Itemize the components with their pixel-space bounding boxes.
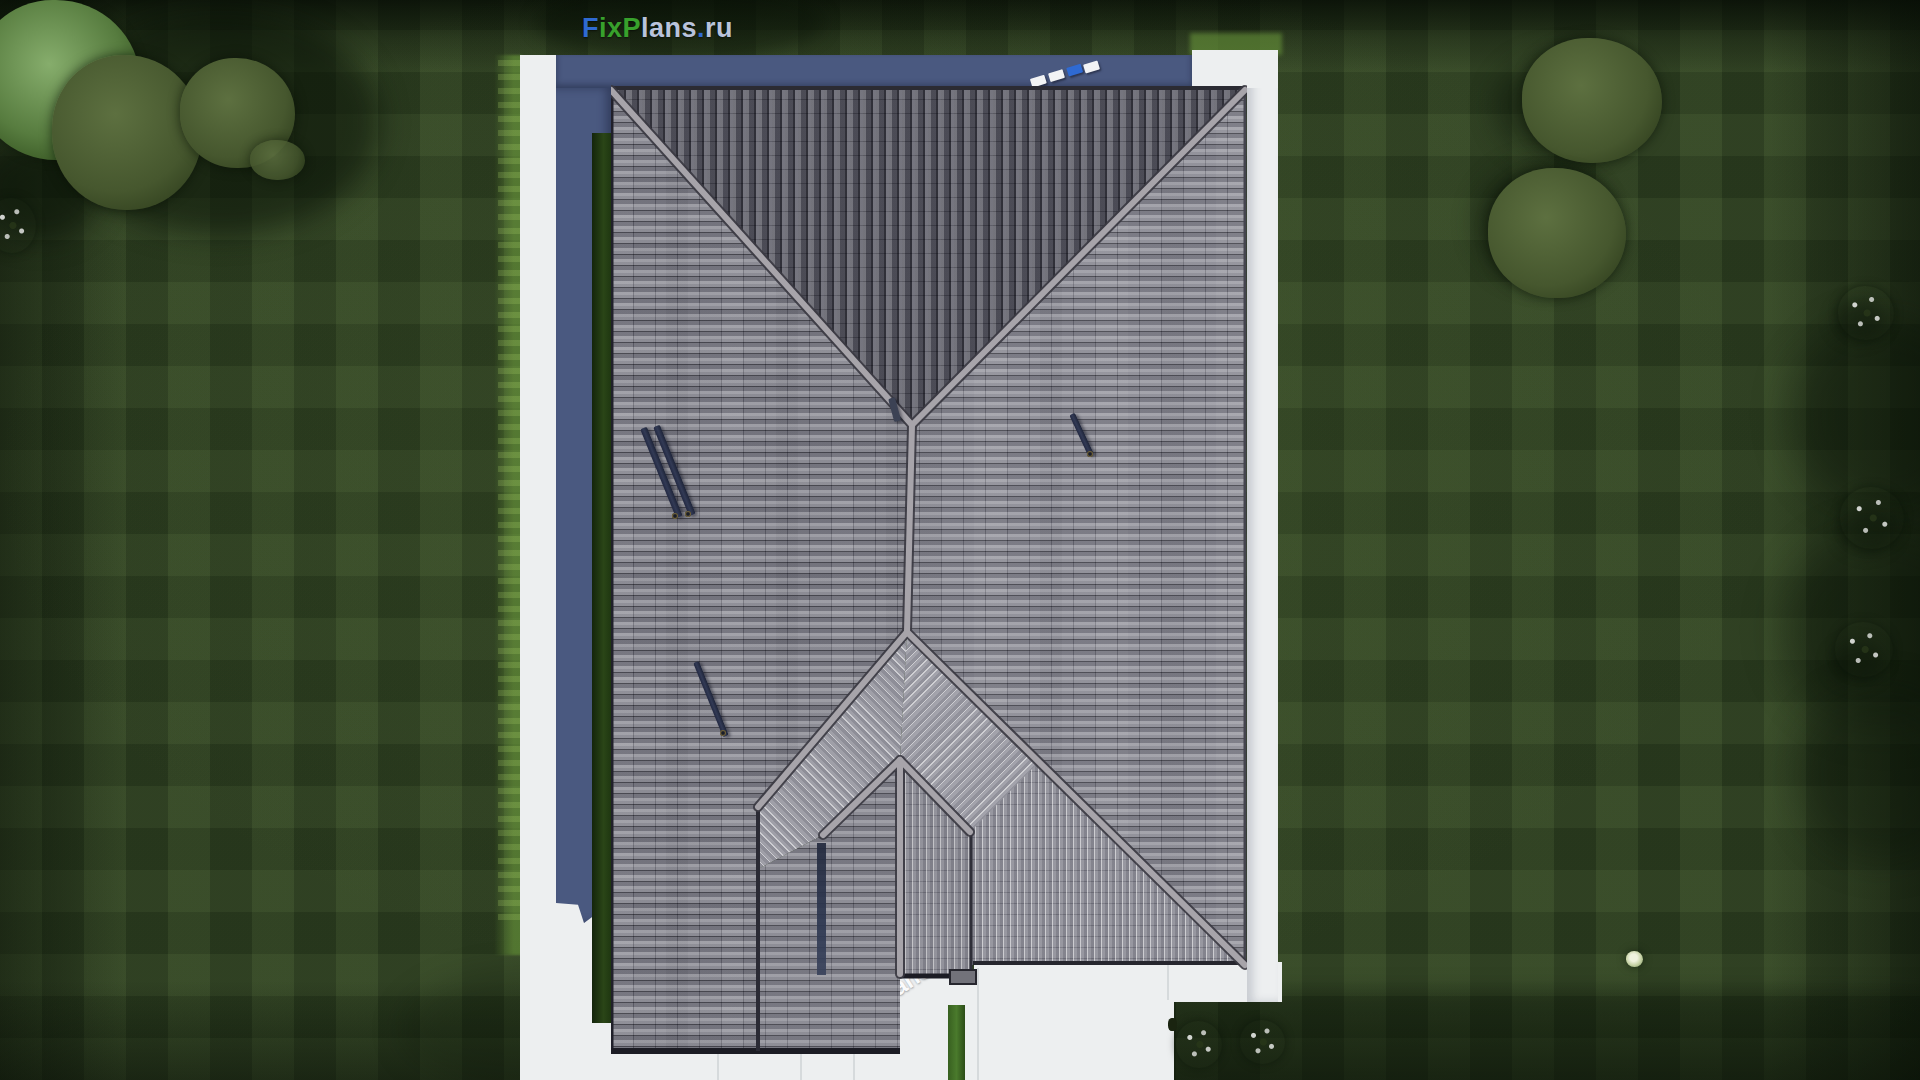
- vent-segment: [1083, 61, 1100, 74]
- eave-step: [950, 970, 976, 984]
- hedge-strip-left: [592, 133, 613, 1023]
- tree-olive: [1522, 38, 1662, 163]
- site-logo: FixPlans.ru: [582, 13, 733, 44]
- bush-flowering: [1176, 1021, 1222, 1068]
- tree-flowering: [1835, 622, 1893, 677]
- logo-seg: ix: [599, 13, 623, 43]
- roof-knob: [720, 730, 726, 736]
- tree-flowering: [1838, 286, 1894, 340]
- vent-segment-blue: [1066, 64, 1083, 77]
- plant-small-dark: [1168, 1018, 1177, 1031]
- bush-flowering: [1240, 1020, 1285, 1064]
- tree-olive-small: [250, 140, 305, 180]
- logo-seg: lans: [641, 13, 697, 43]
- logo-seg: .: [697, 13, 705, 43]
- ridge-caps: [611, 90, 1245, 974]
- house-roof: [611, 84, 1247, 1080]
- tree-olive: [52, 55, 202, 210]
- roof-knob: [672, 513, 678, 519]
- paving-right-band: [1247, 50, 1278, 1002]
- paving-left-band: [520, 55, 556, 1080]
- roof-knob: [685, 511, 691, 517]
- tree-olive: [1488, 168, 1626, 298]
- paving-top-right-patch: [1192, 50, 1278, 88]
- flower-small: [1626, 951, 1643, 967]
- ridge-outline: [611, 90, 1245, 974]
- logo-seg: F: [582, 13, 599, 43]
- logo-seg: ru: [705, 13, 733, 43]
- vent-segment: [1048, 69, 1065, 82]
- eave-lines: [611, 88, 1245, 1053]
- roof-knob: [1087, 451, 1093, 457]
- logo-seg: P: [623, 13, 642, 43]
- tree-flowering: [1840, 487, 1904, 549]
- sunlit-grass-streaks: [498, 60, 520, 920]
- roof-ridge-lines: [611, 84, 1247, 1080]
